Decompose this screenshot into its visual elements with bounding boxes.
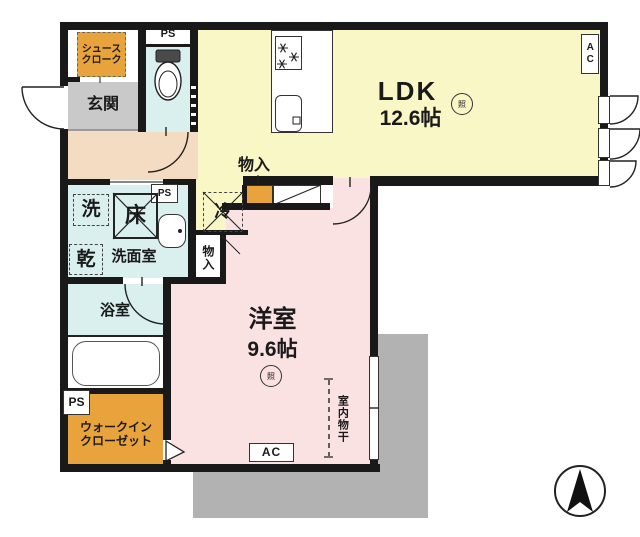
- window-arc-2: [610, 129, 640, 159]
- window-arc-1: [610, 96, 638, 124]
- toilet-icon: [155, 50, 181, 100]
- sink-handle: [293, 117, 300, 124]
- storage-closet-label: 物入: [199, 236, 215, 280]
- storage-label-top: 物入: [224, 155, 284, 177]
- ldk-area-label: 12.6帖: [363, 106, 458, 132]
- toilet-door-arc: [148, 132, 188, 172]
- entrance-label: 玄関: [73, 93, 133, 117]
- washroom-label: 洗面室: [98, 246, 170, 268]
- ldk-label: LDK: [365, 78, 450, 106]
- floor-plan: シュース クローク PS 玄関 LDK 12.6帖 照 物入 冷 洗 床 乾 洗…: [0, 0, 640, 537]
- ldk-light-mark: 照: [451, 93, 473, 115]
- ps-bottom-label: PS: [63, 390, 90, 415]
- washer-label: 洗: [73, 194, 109, 226]
- entrance-door-arc: [22, 87, 64, 129]
- compass-north-icon: [555, 466, 605, 516]
- shoe-closet-label: シュース クローク: [77, 36, 126, 74]
- closet-door-diagonal: [222, 236, 240, 254]
- ps-top-label: PS: [146, 26, 190, 43]
- wic-door-mark: [166, 441, 184, 461]
- western-room-area-label: 9.6帖: [224, 336, 321, 364]
- western-light-mark: 照: [260, 365, 282, 387]
- ldk-light-char: 照: [458, 99, 466, 110]
- western-room-label: 洋室: [224, 305, 321, 335]
- window-arc-3: [610, 161, 636, 187]
- ldk-door-arc: [333, 186, 371, 224]
- stove-burner-icons: [277, 44, 299, 69]
- ac-bottom-label: AC: [249, 443, 294, 462]
- ps-middle-label: PS: [151, 184, 178, 203]
- wic-label: ウォークイン クローゼット: [70, 413, 162, 457]
- fridge-label: 冷: [203, 192, 243, 232]
- indoor-drying-label: 室内物干: [334, 378, 350, 460]
- bathroom-label: 浴室: [79, 300, 151, 322]
- ac-top-label: AC: [581, 34, 599, 74]
- western-light-char: 照: [267, 371, 275, 382]
- storage-diagonal: [273, 185, 321, 205]
- washbasin-faucet: [178, 229, 182, 233]
